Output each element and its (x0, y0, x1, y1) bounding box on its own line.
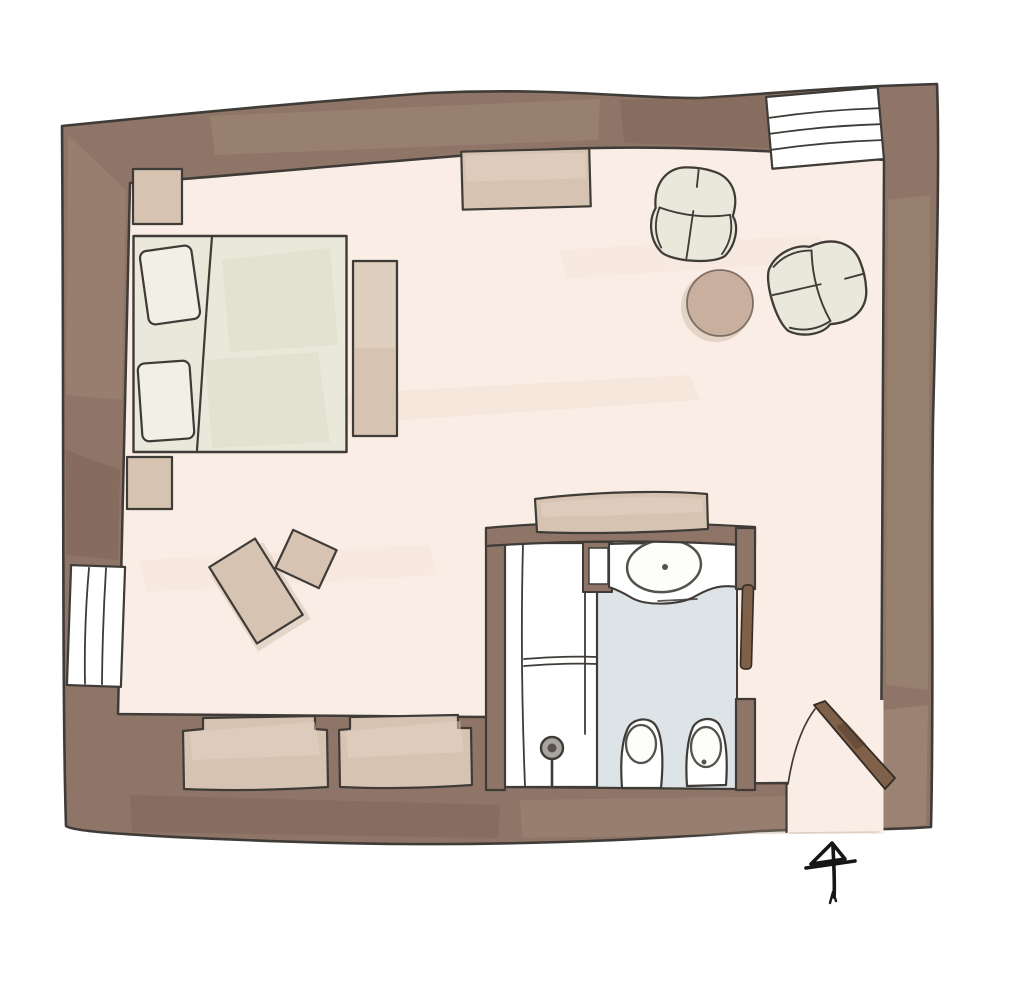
wardrobe (535, 492, 708, 533)
pillow (137, 360, 194, 441)
toilet (621, 719, 662, 788)
nightstand-top (133, 169, 182, 224)
bathroom-wall-right-lower (736, 699, 755, 790)
toilet-bowl (626, 725, 656, 763)
bathroom (486, 523, 755, 790)
north-arrow (806, 843, 855, 903)
bathroom-wall-right-upper (736, 528, 755, 589)
bathroom-wall-left (486, 528, 505, 790)
bed-shade (205, 352, 330, 448)
nightstand-bottom (127, 457, 172, 509)
wall-wash (882, 705, 928, 828)
pier-inset (589, 548, 608, 584)
bed-shade (222, 248, 338, 352)
pillow-shape (139, 245, 201, 326)
shower-drain-center (548, 744, 557, 753)
wall-wash (886, 195, 930, 690)
pillow-shape (137, 360, 194, 441)
bidet-faucet-dot (702, 760, 707, 765)
wall-wash (620, 95, 772, 148)
bench (353, 261, 397, 436)
entry-door (787, 700, 896, 834)
rug-wash (465, 152, 586, 181)
armchair-1 (648, 164, 743, 265)
pillow (139, 245, 201, 326)
entry-threshold-line (789, 832, 879, 833)
bathroom-door (740, 585, 753, 669)
north-arrow-stem (833, 846, 834, 897)
shower-pier (583, 542, 612, 592)
sink-drain-dot (662, 564, 668, 570)
bench-wash (355, 263, 395, 348)
side-table (687, 270, 753, 336)
bidet (686, 719, 726, 786)
area-rug-top (461, 148, 590, 209)
north-arrow-head (811, 843, 845, 864)
double-bed (134, 236, 347, 452)
window-left-frame (67, 565, 125, 687)
window-top-right (766, 87, 884, 168)
floor-plan-page: Hand-drawn watercolor floor plan of a be… (0, 0, 1024, 988)
floor-plan-drawing (0, 0, 1024, 988)
window-left (67, 565, 125, 687)
bathroom-door-leaf (740, 585, 753, 669)
